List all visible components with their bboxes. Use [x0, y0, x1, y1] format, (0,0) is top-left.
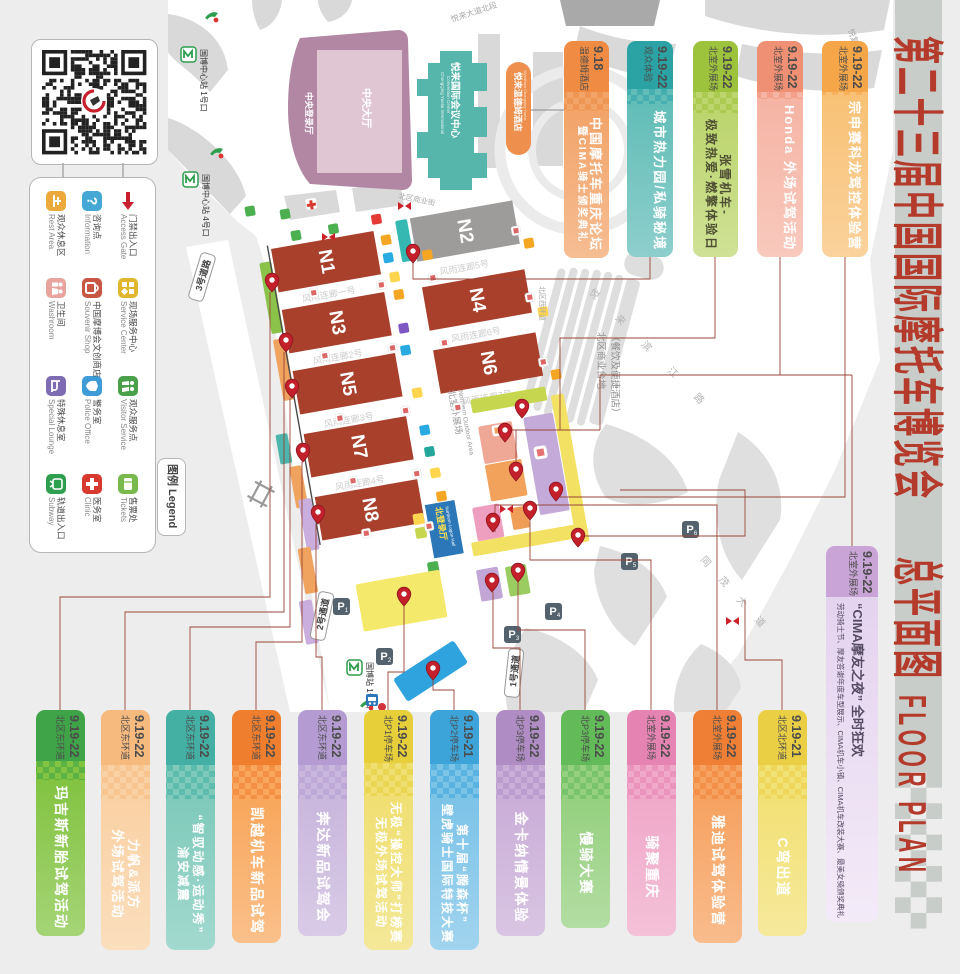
svg-text:?: ? — [85, 197, 101, 206]
